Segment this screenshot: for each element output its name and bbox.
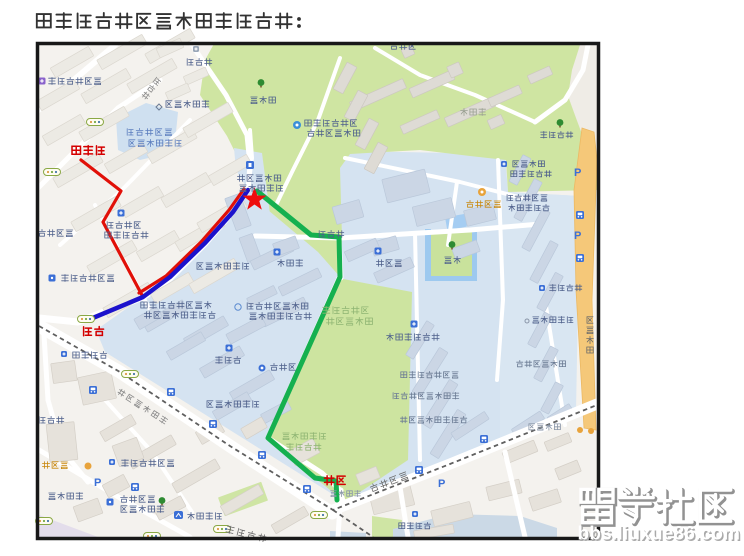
svg-text:P: P xyxy=(574,230,581,242)
svg-text:P: P xyxy=(94,477,101,489)
svg-text:P: P xyxy=(438,478,445,490)
svg-text:P: P xyxy=(574,167,581,179)
svg-text:bbs.liuxue86.com: bbs.liuxue86.com xyxy=(578,524,741,545)
